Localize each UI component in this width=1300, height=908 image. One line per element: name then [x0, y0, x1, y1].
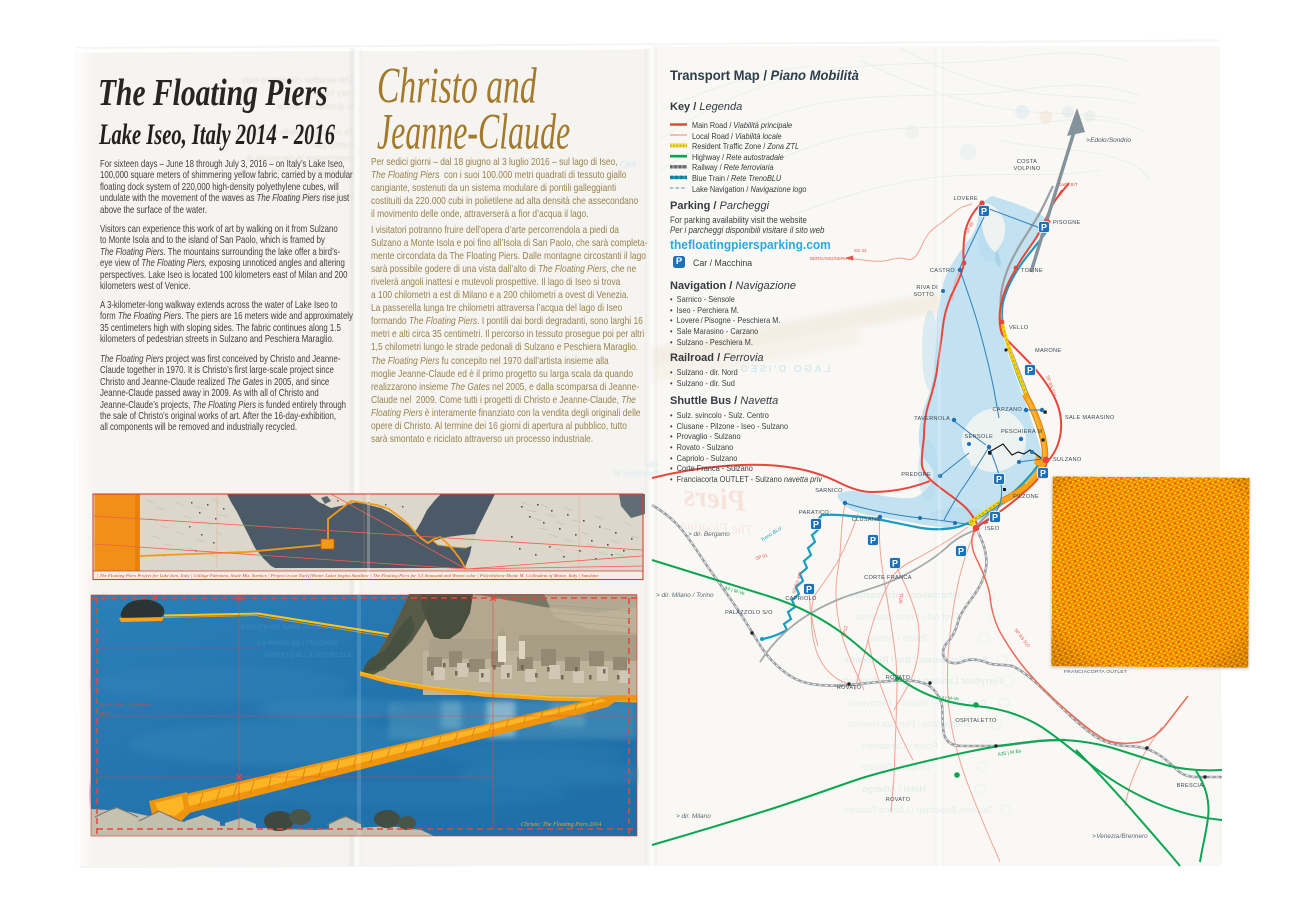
- svg-text:COSTA: COSTA: [1017, 159, 1037, 165]
- svg-text:VELLO: VELLO: [1009, 325, 1029, 331]
- svg-text:Shuttle Stop / Fermata Navetta: Shuttle Stop / Fermata Navetta: [848, 719, 972, 729]
- svg-text:CAPRIOLO: CAPRIOLO: [785, 596, 817, 602]
- svg-text:> Edolo /Sondrio: > Edolo /Sondrio: [1086, 137, 1131, 144]
- svg-text:> dir. Milano: > dir. Milano: [676, 813, 711, 820]
- svg-text:> Venezia /Brennero: > Venezia /Brennero: [1092, 833, 1148, 840]
- svg-text:PISOGNE: PISOGNE: [1053, 220, 1081, 226]
- svg-text:Train Station / Stazione Ferro: Train Station / Stazione Ferroviaria: [849, 698, 988, 708]
- svg-text:CLUSANE: CLUSANE: [852, 517, 881, 523]
- svg-text:SP 88: SP 88: [964, 221, 974, 235]
- svg-text:TOLINE: TOLINE: [1021, 268, 1043, 274]
- svg-text:PILZONE: PILZONE: [1013, 494, 1039, 500]
- svg-text:FRANCIACORTA OUTLET: FRANCIACORTA OUTLET: [1064, 669, 1127, 675]
- svg-text:SARNICO: SARNICO: [815, 488, 843, 494]
- svg-text:Taschen Bookshop / Libreria Ta: Taschen Bookshop / Libreria Taschen: [843, 805, 992, 815]
- svg-text:PALAZZOLO S/O: PALAZZOLO S/O: [725, 610, 773, 616]
- svg-text:> dir. Milano / Torino: > dir. Milano / Torino: [656, 592, 714, 599]
- svg-text:ISEO: ISEO: [985, 526, 1000, 532]
- svg-text:A35 | M-Bs: A35 | M-Bs: [997, 748, 1022, 758]
- svg-text:SALE MARASINO: SALE MARASINO: [1065, 415, 1115, 421]
- svg-text:ROVATO: ROVATO: [886, 797, 911, 803]
- svg-text:PREDORE: PREDORE: [901, 472, 931, 478]
- svg-text:CASTRO: CASTRO: [930, 268, 955, 274]
- svg-text:SP12: SP12: [841, 625, 849, 638]
- svg-text:Police / Carabinieri: Police / Carabinieri: [862, 741, 938, 751]
- svg-text:Information / Informazioni: Information / Informazioni: [850, 590, 961, 600]
- svg-text:VOLPINO: VOLPINO: [1014, 166, 1041, 172]
- svg-text:BERGAMO/SERIATE: BERGAMO/SERIATE: [810, 256, 854, 261]
- svg-text:SS 42: SS 42: [854, 248, 867, 253]
- svg-text:PESCHIERA M: PESCHIERA M: [1001, 429, 1042, 435]
- svg-text:Christo: The Floating Piers 20: Christo: The Floating Piers 2014: [521, 821, 601, 828]
- svg-text:Hotel / Albergo: Hotel / Albergo: [862, 784, 926, 794]
- svg-text:SOTTO: SOTTO: [913, 292, 934, 298]
- svg-text:Treno BLU: Treno BLU: [760, 525, 784, 543]
- svg-text:33 m x 16 m - 2 pontoons: 33 m x 16 m - 2 pontoons: [99, 702, 151, 707]
- svg-text:ROVATO: ROVATO: [837, 685, 862, 691]
- svg-text:ROVATO: ROVATO: [886, 675, 911, 681]
- svg-text:SP BS 510: SP BS 510: [1013, 628, 1031, 649]
- svg-text:First Aid / Primo Soccorso: First Aid / Primo Soccorso: [856, 612, 960, 622]
- svg-text:DA PARTE DE I FECONDE: DA PARTE DE I FECONDE: [257, 640, 338, 647]
- svg-text:SP 91: SP 91: [755, 552, 769, 561]
- svg-text:CARZANO: CARZANO: [993, 407, 1023, 413]
- svg-text:SP11: SP11: [898, 592, 904, 604]
- svg-text:Piers: Piers: [682, 479, 749, 519]
- svg-text:MARONE: MARONE: [1035, 348, 1061, 354]
- svg-text:> dir. Bergamo: > dir. Bergamo: [688, 531, 730, 538]
- svg-text:SENSOLE: SENSOLE: [964, 434, 993, 440]
- svg-text:16 m: 16 m: [99, 711, 109, 716]
- svg-text:PARATICO: PARATICO: [799, 510, 830, 516]
- svg-text:CORTE FRANCA: CORTE FRANCA: [864, 575, 912, 581]
- svg-text:BRESCIA: BRESCIA: [1177, 783, 1204, 789]
- svg-text:LOVERE: LOVERE: [954, 196, 979, 202]
- svg-text:RIVA DI: RIVA DI: [916, 285, 938, 291]
- svg-text:LAGO D'ISEO: LAGO D'ISEO: [738, 364, 831, 375]
- svg-text:SULZANO: SULZANO: [1053, 457, 1082, 463]
- svg-text:OSPITALETTO: OSPITALETTO: [955, 718, 997, 724]
- svg-text:AOSETTO ALLA SICUREZZA: AOSETTO ALLA SICUREZZA: [263, 652, 352, 659]
- svg-text:TAVERNOLA: TAVERNOLA: [914, 416, 950, 422]
- svg-text:Darfo B/T: Darfo B/T: [1058, 182, 1078, 187]
